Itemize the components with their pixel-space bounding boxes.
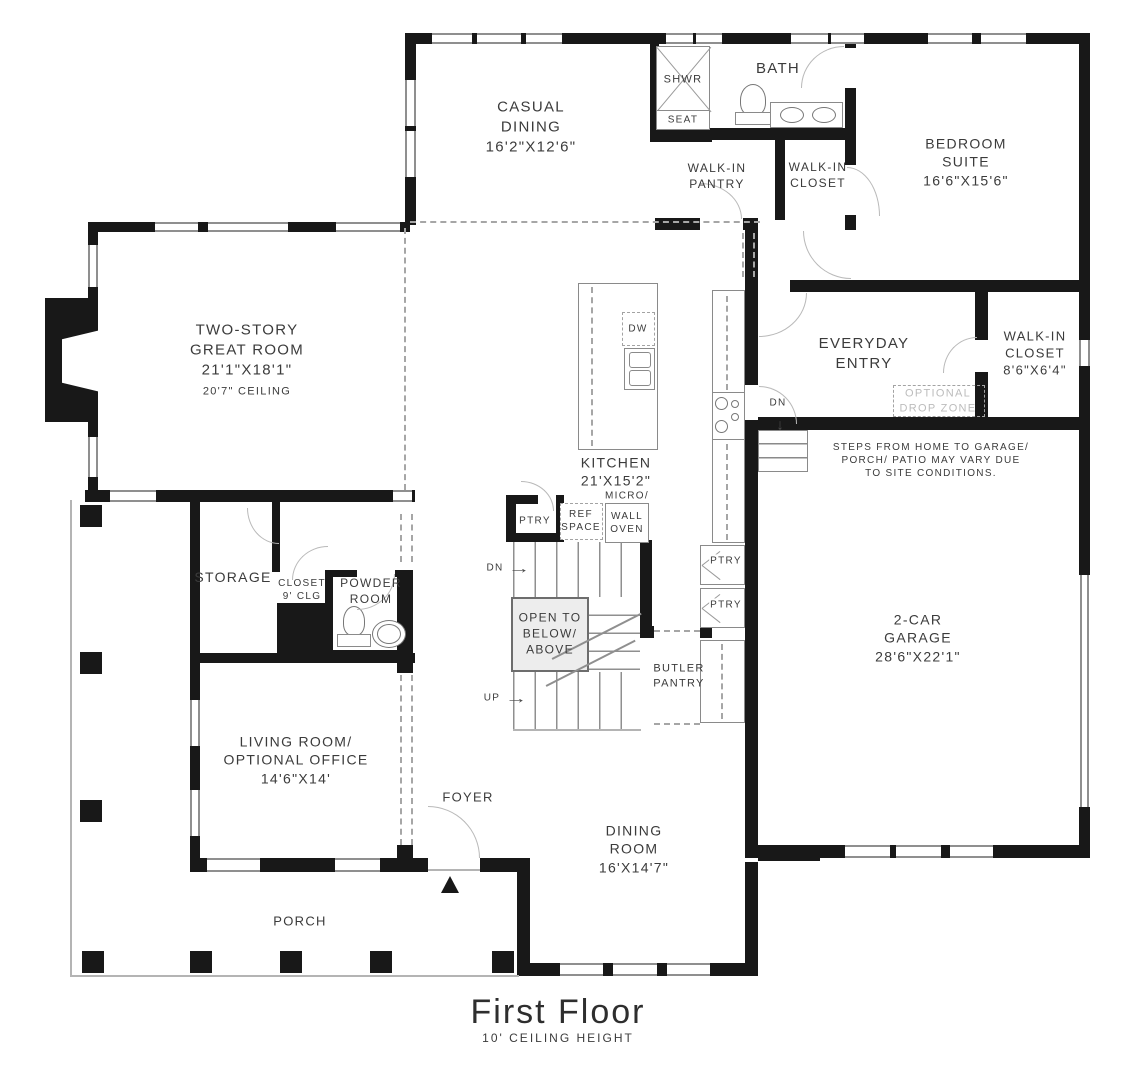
door-arc — [943, 337, 977, 373]
label-steps-note: STEPS FROM HOME TO GARAGE/ PORCH/ PATIO … — [833, 441, 1029, 481]
label-up: UP — [484, 691, 501, 704]
label-storage: STORAGE — [194, 568, 271, 586]
label-ptry-1: PTRY — [709, 554, 743, 567]
porch-post — [280, 951, 302, 973]
label-dining-room: DINING ROOM 16'X14'7" — [599, 821, 669, 876]
counter-depth-line — [726, 296, 730, 390]
toilet-tank — [735, 112, 771, 125]
window — [405, 80, 416, 126]
door-gap — [745, 385, 758, 420]
arrow-right-icon: → — [508, 560, 530, 576]
wall-segment — [745, 420, 758, 850]
wall-segment — [517, 872, 530, 976]
window — [335, 858, 380, 872]
door-arc — [521, 481, 554, 511]
window — [896, 845, 941, 858]
label-great-room-ceiling: 20'7" CEILING — [203, 385, 291, 400]
label-ptry-2: PTRY — [709, 598, 743, 611]
label-garage: 2-CAR GARAGE 28'6"X22'1" — [875, 610, 961, 665]
label-bedroom-suite: BEDROOM SUITE 16'6"X15'6" — [923, 134, 1009, 189]
label-bath: BATH — [756, 59, 800, 79]
label-casual-dining: CASUAL DINING 16'2"X12'6" — [486, 97, 577, 156]
door-arc — [292, 546, 328, 580]
floor-plan: CASUAL DINING 16'2"X12'6" SHWR SEAT BATH… — [0, 0, 1145, 1080]
label-great-room: TWO-STORY GREAT ROOM 21'1"X18'1" — [190, 320, 304, 379]
door-arc — [801, 46, 844, 88]
wall-segment — [640, 626, 654, 638]
counter-depth-line — [721, 644, 725, 719]
two-story-break-line — [404, 228, 408, 490]
wall-segment — [758, 848, 820, 861]
toilet-bowl — [343, 606, 365, 636]
label-kitchen: KITCHEN 21'X15'2" — [581, 454, 652, 491]
sink-basin — [629, 352, 651, 368]
label-ptry-stairs: PTRY — [519, 514, 551, 527]
window — [336, 222, 400, 232]
window — [88, 437, 98, 477]
ceiling-break-line — [410, 221, 760, 225]
label-living-room: LIVING ROOM/ OPTIONAL OFFICE 14'6"X14' — [224, 732, 369, 787]
label-shwr: SHWR — [664, 73, 703, 88]
label-micro: MICRO/ — [603, 489, 651, 502]
porch-edge — [70, 975, 519, 977]
window — [190, 700, 200, 746]
porch-post — [492, 951, 514, 973]
wall-segment — [745, 862, 758, 975]
vanity-sink — [780, 107, 804, 123]
label-walk-in-closet-garage: WALK-IN CLOSET 8'6"X6'4" — [1003, 327, 1066, 378]
door-arc — [803, 231, 851, 279]
label-wall-oven: WALL OVEN — [610, 510, 644, 536]
toilet-tank — [337, 634, 371, 647]
wall-segment — [710, 128, 850, 140]
wall-segment — [506, 533, 564, 542]
label-optional-drop-zone: OPTIONAL DROP ZONE — [900, 386, 977, 415]
burner — [731, 400, 739, 408]
wall-segment — [277, 603, 330, 653]
stair-treads-upper — [513, 542, 641, 597]
stair-edge — [513, 729, 641, 731]
fireplace-firebox — [62, 330, 98, 392]
cased-opening — [742, 233, 746, 277]
wall-segment — [975, 292, 988, 340]
window — [928, 33, 972, 44]
cased-opening — [400, 675, 404, 845]
counter-depth-line — [591, 287, 595, 446]
window — [845, 845, 890, 858]
arrow-down-icon: ↓ — [776, 417, 784, 434]
porch-edge — [70, 500, 72, 977]
powder-sink-basin — [377, 624, 401, 644]
window — [110, 490, 156, 502]
window — [393, 490, 412, 502]
window — [155, 222, 198, 232]
wall-segment — [190, 653, 415, 663]
wall-segment — [650, 130, 712, 142]
window — [405, 131, 416, 177]
stair-treads-lower — [513, 672, 641, 729]
wall-segment — [790, 280, 1090, 292]
label-walk-in-pantry: WALK-IN PANTRY — [688, 161, 747, 193]
wall-segment — [397, 845, 413, 858]
wall-segment — [845, 88, 856, 165]
entry-direction-marker — [441, 876, 459, 893]
label-dw: DW — [628, 322, 647, 335]
door-threshold — [428, 869, 480, 871]
window — [696, 33, 722, 44]
wall-segment — [1079, 33, 1090, 575]
label-butler-pantry: BUTLER PANTRY — [653, 661, 704, 690]
window — [1079, 340, 1090, 366]
wall-segment — [640, 540, 652, 635]
cased-opening — [400, 514, 404, 562]
window — [526, 33, 562, 44]
window — [831, 33, 864, 44]
burner — [715, 420, 728, 433]
door-arc — [428, 806, 480, 858]
burner — [715, 397, 728, 410]
window — [477, 33, 521, 44]
porch-post — [190, 951, 212, 973]
cased-opening — [654, 723, 700, 727]
label-dn-garage: DN — [769, 396, 786, 409]
window — [560, 963, 603, 976]
label-foyer: FOYER — [442, 788, 493, 805]
window — [613, 963, 657, 976]
porch-post — [80, 652, 102, 674]
arrow-right-icon: → — [505, 690, 527, 706]
door-arc — [247, 508, 279, 544]
garage-steps — [758, 430, 808, 472]
window — [950, 845, 993, 858]
wall-segment — [845, 215, 856, 230]
window — [432, 33, 472, 44]
porch-post — [80, 505, 102, 527]
porch-post — [80, 800, 102, 822]
cased-opening — [411, 514, 415, 562]
label-powder-room: POWDER ROOM — [340, 576, 402, 608]
vanity-sink — [812, 107, 836, 123]
window — [207, 858, 260, 872]
wall-segment — [397, 660, 413, 673]
window — [88, 245, 98, 287]
sink-basin — [629, 370, 651, 386]
page-subtitle: 10' CEILING HEIGHT — [482, 1031, 634, 1045]
door-arc — [759, 293, 807, 337]
label-open-to-below: OPEN TO BELOW/ ABOVE — [519, 610, 582, 657]
window — [666, 33, 693, 44]
label-dn: DN — [486, 561, 503, 574]
page-title: First Floor — [471, 993, 646, 1032]
window — [981, 33, 1026, 44]
cased-opening — [753, 233, 757, 277]
cased-opening — [654, 630, 700, 634]
label-closet: CLOSET 9' CLG — [278, 577, 326, 603]
window — [791, 33, 828, 44]
label-porch: PORCH — [273, 912, 326, 929]
porch-post — [82, 951, 104, 973]
label-walk-in-closet-upper: WALK-IN CLOSET — [789, 160, 848, 192]
wall-segment — [88, 232, 98, 245]
window — [190, 790, 200, 836]
door-arc — [847, 167, 880, 216]
window — [208, 222, 288, 232]
burner — [731, 413, 739, 421]
wall-segment — [775, 140, 785, 220]
window — [667, 963, 710, 976]
wall-segment — [480, 858, 530, 872]
label-everyday-entry: EVERYDAY ENTRY — [819, 334, 910, 374]
cased-opening — [411, 675, 415, 845]
label-seat: SEAT — [668, 113, 699, 126]
garage-door — [1080, 575, 1089, 807]
label-ref-space: REF SPACE — [561, 508, 601, 534]
counter-depth-line — [726, 444, 730, 540]
wall-segment — [325, 570, 333, 658]
porch-post — [370, 951, 392, 973]
